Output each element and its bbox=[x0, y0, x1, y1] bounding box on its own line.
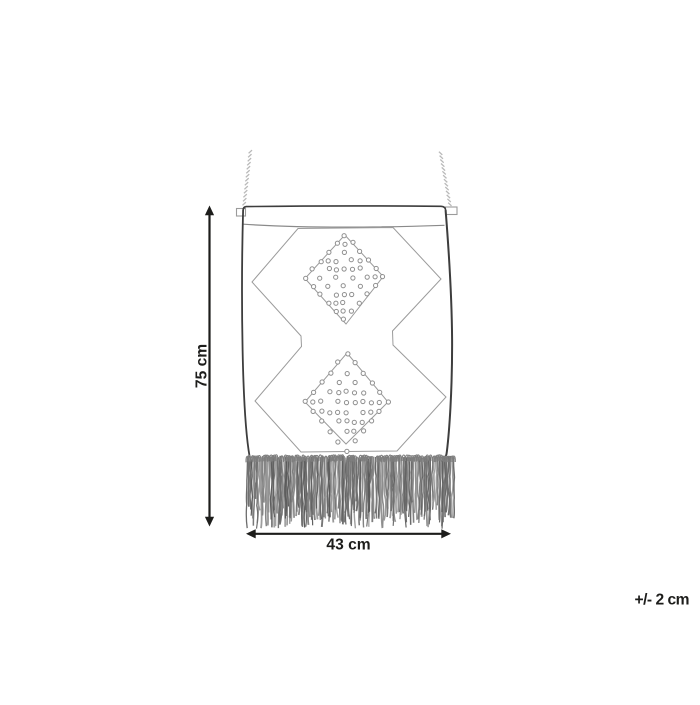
svg-text:+/- 2 cm: +/- 2 cm bbox=[634, 592, 689, 609]
svg-text:43 cm: 43 cm bbox=[326, 537, 370, 554]
svg-text:75 cm: 75 cm bbox=[194, 344, 211, 388]
